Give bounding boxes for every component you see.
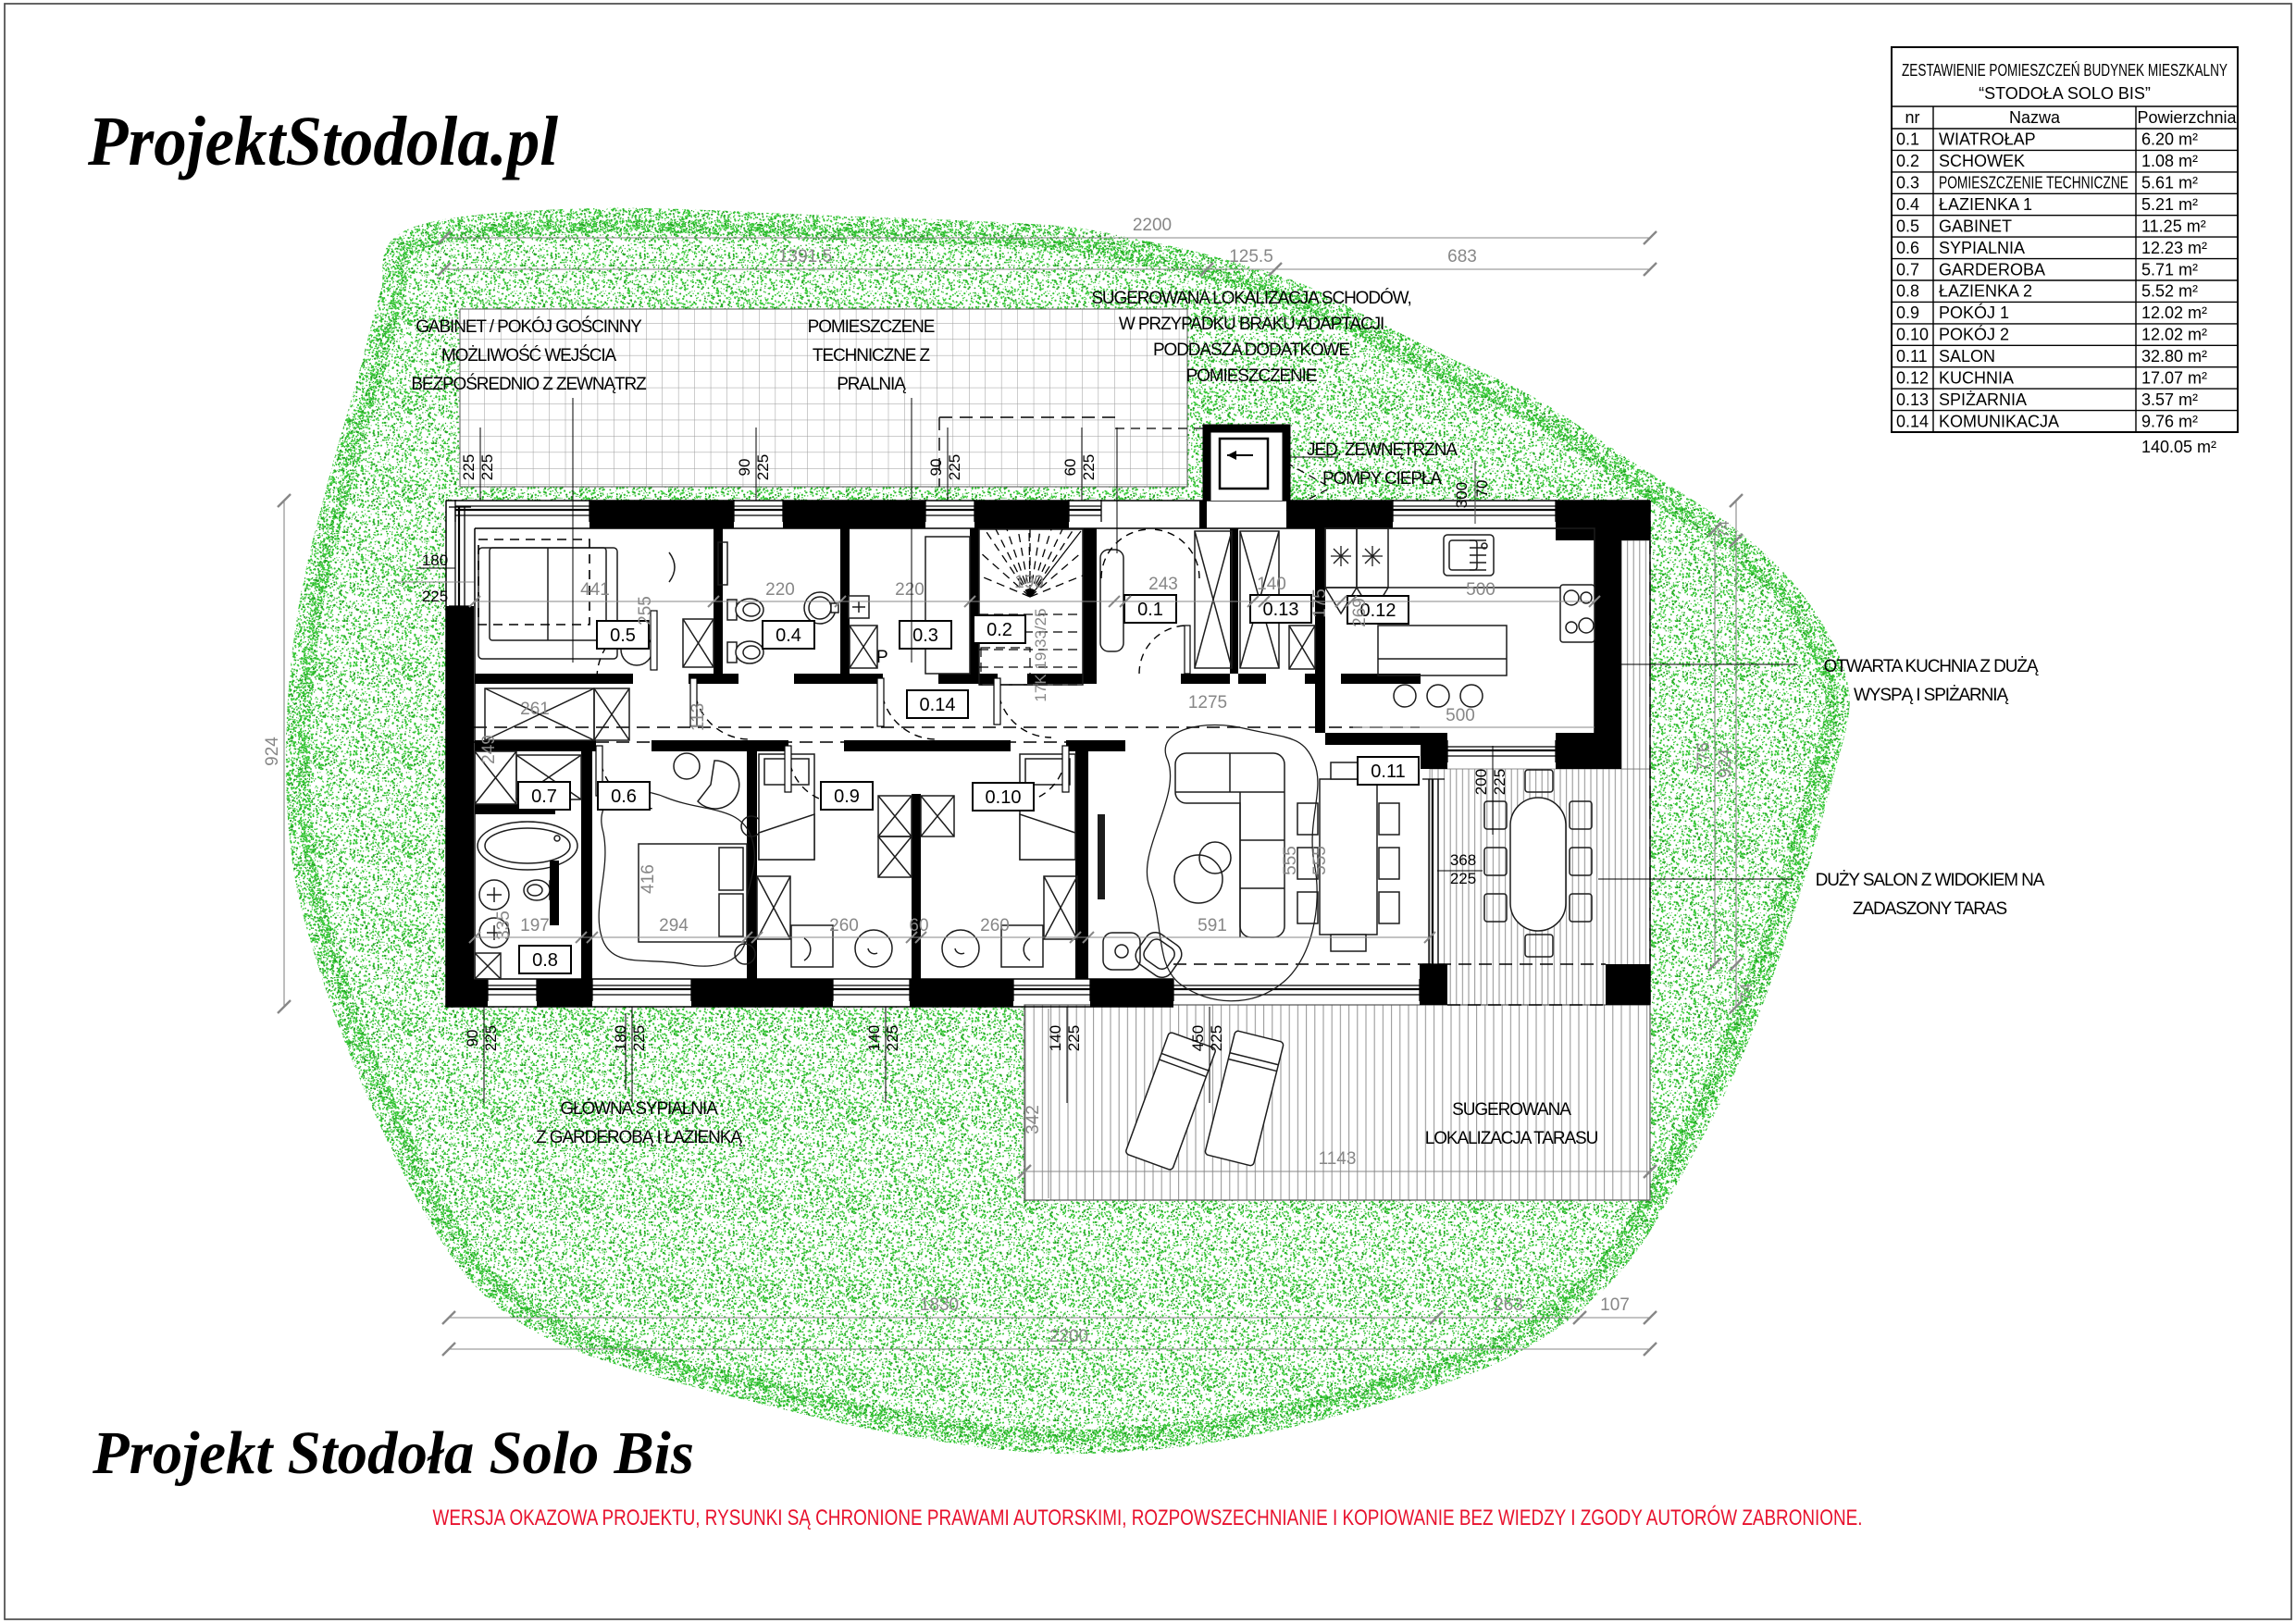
svg-text:225: 225 bbox=[754, 454, 772, 480]
svg-text:90: 90 bbox=[464, 1030, 481, 1047]
svg-text:225: 225 bbox=[1080, 454, 1098, 480]
svg-text:0.12: 0.12 bbox=[1896, 368, 1929, 387]
svg-text:0.8: 0.8 bbox=[1896, 282, 1919, 301]
svg-text:90: 90 bbox=[736, 459, 753, 477]
svg-text:5.61 m²: 5.61 m² bbox=[2141, 174, 2198, 192]
svg-text:Projekt Stodoła Solo Bis: Projekt Stodoła Solo Bis bbox=[92, 1419, 694, 1487]
svg-text:225: 225 bbox=[482, 1025, 500, 1051]
svg-text:17.07 m²: 17.07 m² bbox=[2141, 368, 2207, 387]
svg-text:200: 200 bbox=[1472, 769, 1490, 795]
svg-text:335: 335 bbox=[494, 911, 514, 940]
svg-text:0.8: 0.8 bbox=[532, 950, 558, 971]
svg-text:WERSJA OKAZOWA PROJEKTU, RYSUN: WERSJA OKAZOWA PROJEKTU, RYSUNKI SĄ CHRO… bbox=[433, 1505, 1863, 1530]
svg-text:294: 294 bbox=[659, 916, 689, 935]
svg-text:12.02 m²: 12.02 m² bbox=[2141, 326, 2207, 344]
svg-text:0.7: 0.7 bbox=[531, 787, 557, 807]
svg-text:LOKALIZACJA TARASU: LOKALIZACJA TARASU bbox=[1425, 1129, 1598, 1148]
svg-text:9.76 m²: 9.76 m² bbox=[2141, 412, 2198, 430]
svg-text:0.3: 0.3 bbox=[912, 626, 938, 646]
svg-text:555: 555 bbox=[1310, 846, 1330, 875]
svg-text:175: 175 bbox=[1310, 588, 1330, 618]
svg-text:0.4: 0.4 bbox=[776, 626, 801, 646]
svg-text:2200: 2200 bbox=[1133, 216, 1172, 235]
svg-text:0.9: 0.9 bbox=[834, 787, 860, 807]
svg-text:0.13: 0.13 bbox=[1263, 600, 1299, 620]
svg-text:0.7: 0.7 bbox=[1896, 260, 1919, 279]
svg-text:MOŻLIWOŚĆ WEJŚCIA: MOŻLIWOŚĆ WEJŚCIA bbox=[441, 345, 617, 365]
svg-text:0.5: 0.5 bbox=[1896, 217, 1919, 235]
svg-text:TECHNICZNE Z: TECHNICZNE Z bbox=[813, 346, 931, 365]
svg-text:261: 261 bbox=[520, 700, 550, 719]
svg-text:197: 197 bbox=[520, 916, 550, 935]
svg-text:225: 225 bbox=[422, 588, 448, 605]
svg-text:0.6: 0.6 bbox=[1896, 239, 1919, 257]
svg-text:11.25 m²: 11.25 m² bbox=[2141, 217, 2206, 235]
svg-text:190: 190 bbox=[1014, 573, 1044, 592]
svg-text:90: 90 bbox=[927, 459, 945, 477]
svg-text:DUŻY SALON Z WIDOKIEM NA: DUŻY SALON Z WIDOKIEM NA bbox=[1816, 871, 2045, 890]
svg-text:POKÓJ 1: POKÓJ 1 bbox=[1939, 303, 2009, 322]
svg-text:12.23 m²: 12.23 m² bbox=[2141, 239, 2207, 257]
svg-text:GARDEROBA: GARDEROBA bbox=[1939, 260, 2045, 279]
svg-text:225: 225 bbox=[630, 1025, 648, 1051]
svg-text:GABINET / POKÓJ GOŚCINNY: GABINET / POKÓJ GOŚCINNY bbox=[416, 316, 642, 337]
svg-text:ŁAZIENKA 2: ŁAZIENKA 2 bbox=[1939, 282, 2032, 301]
svg-text:P: P bbox=[876, 648, 887, 667]
svg-text:220: 220 bbox=[765, 580, 795, 600]
svg-text:243: 243 bbox=[1148, 575, 1178, 594]
svg-text:0.10: 0.10 bbox=[986, 787, 1022, 808]
svg-text:0.11: 0.11 bbox=[1896, 347, 1928, 365]
svg-text:Powierzchnia: Powierzchnia bbox=[2137, 108, 2237, 127]
svg-text:368: 368 bbox=[1450, 851, 1476, 869]
svg-text:255: 255 bbox=[636, 596, 655, 626]
svg-text:249: 249 bbox=[479, 735, 499, 764]
svg-text:260: 260 bbox=[980, 916, 1010, 935]
svg-text:nr: nr bbox=[1905, 108, 1919, 127]
svg-text:KOMUNIKACJA: KOMUNIKACJA bbox=[1939, 412, 2059, 430]
svg-text:70: 70 bbox=[1473, 480, 1491, 498]
svg-text:SALON: SALON bbox=[1939, 347, 1995, 365]
svg-text:GŁÓWNA SYPIALNIA: GŁÓWNA SYPIALNIA bbox=[560, 1098, 718, 1119]
svg-text:BEZPOŚREDNIO Z ZEWNĄTRZ: BEZPOŚREDNIO Z ZEWNĄTRZ bbox=[411, 374, 647, 394]
svg-text:0.6: 0.6 bbox=[611, 787, 637, 807]
svg-text:0.11: 0.11 bbox=[1371, 762, 1405, 782]
svg-text:Z GARDEROBĄ I ŁAZIENKĄ: Z GARDEROBĄ I ŁAZIENKĄ bbox=[536, 1128, 742, 1147]
svg-text:342: 342 bbox=[1024, 1105, 1043, 1134]
svg-text:1391.5: 1391.5 bbox=[778, 247, 832, 266]
svg-text:5.21 m²: 5.21 m² bbox=[2141, 195, 2198, 214]
svg-text:POKÓJ 2: POKÓJ 2 bbox=[1939, 325, 2009, 344]
svg-text:225: 225 bbox=[884, 1025, 901, 1051]
svg-text:ProjektStodola.pl: ProjektStodola.pl bbox=[87, 103, 558, 180]
svg-text:74: 74 bbox=[1737, 984, 1755, 1001]
svg-text:0.5: 0.5 bbox=[610, 626, 636, 646]
svg-text:60: 60 bbox=[909, 916, 928, 935]
svg-text:POMIESZCZENE: POMIESZCZENE bbox=[808, 317, 935, 337]
svg-text:924: 924 bbox=[1716, 749, 1735, 778]
svg-text:SCHOWEK: SCHOWEK bbox=[1939, 152, 2025, 170]
svg-text:17K 19,33/25: 17K 19,33/25 bbox=[1032, 608, 1049, 701]
svg-text:SYPIALNIA: SYPIALNIA bbox=[1939, 239, 2025, 257]
svg-text:Nazwa: Nazwa bbox=[2009, 108, 2061, 127]
svg-text:SUGEROWANA LOKALIZACJA SCHODÓW: SUGEROWANA LOKALIZACJA SCHODÓW, bbox=[1091, 288, 1410, 308]
svg-text:“STODOŁA SOLO BIS”: “STODOŁA SOLO BIS” bbox=[1979, 84, 2151, 103]
svg-text:POMPY CIEPŁA: POMPY CIEPŁA bbox=[1322, 469, 1442, 489]
svg-text:591: 591 bbox=[1198, 916, 1227, 935]
svg-text:263: 263 bbox=[1494, 1295, 1523, 1315]
svg-text:GABINET: GABINET bbox=[1939, 217, 2012, 235]
svg-text:WIATROŁAP: WIATROŁAP bbox=[1939, 130, 2036, 149]
svg-text:113: 113 bbox=[689, 703, 708, 731]
svg-text:ZESTAWIENIE POMIESZCZEŃ BUDYNE: ZESTAWIENIE POMIESZCZEŃ BUDYNEK MIESZKAL… bbox=[1902, 61, 2228, 80]
svg-text:0.9: 0.9 bbox=[1896, 304, 1919, 322]
svg-text:1830: 1830 bbox=[920, 1295, 959, 1315]
svg-text:225: 225 bbox=[1491, 769, 1508, 795]
svg-text:269: 269 bbox=[1350, 598, 1370, 627]
svg-text:225: 225 bbox=[1450, 870, 1476, 887]
svg-text:500: 500 bbox=[1446, 706, 1475, 725]
svg-text:0.10: 0.10 bbox=[1896, 326, 1929, 344]
svg-text:74: 74 bbox=[1715, 521, 1732, 539]
svg-text:683: 683 bbox=[1447, 247, 1477, 266]
svg-text:416: 416 bbox=[639, 864, 658, 894]
svg-text:3.57 m²: 3.57 m² bbox=[2141, 390, 2198, 409]
svg-text:W PRZYPADKU BRAKU ADAPTACJI: W PRZYPADKU BRAKU ADAPTACJI bbox=[1119, 315, 1384, 334]
svg-text:SUGEROWANA: SUGEROWANA bbox=[1452, 1100, 1571, 1120]
svg-text:441: 441 bbox=[580, 580, 610, 600]
svg-text:POMIESZCZENIE TECHNICZNE: POMIESZCZENIE TECHNICZNE bbox=[1939, 174, 2128, 192]
svg-text:180: 180 bbox=[612, 1025, 629, 1051]
svg-text:OTWARTA KUCHNIA Z DUŻĄ: OTWARTA KUCHNIA Z DUŻĄ bbox=[1824, 657, 2039, 676]
svg-text:1275: 1275 bbox=[1188, 693, 1227, 712]
svg-text:SPIŻARNIA: SPIŻARNIA bbox=[1939, 390, 2027, 409]
svg-text:KUCHNIA: KUCHNIA bbox=[1939, 368, 2014, 387]
svg-text:500: 500 bbox=[1466, 580, 1496, 600]
svg-text:125.5: 125.5 bbox=[1229, 247, 1273, 266]
svg-text:POMIESZCZENIE: POMIESZCZENIE bbox=[1186, 366, 1317, 386]
svg-text:0.1: 0.1 bbox=[1137, 600, 1163, 620]
svg-text:225: 225 bbox=[1065, 1025, 1083, 1051]
svg-text:1143: 1143 bbox=[1319, 1149, 1357, 1169]
svg-text:0.14: 0.14 bbox=[1896, 412, 1929, 430]
svg-text:225: 225 bbox=[460, 454, 478, 480]
svg-text:450: 450 bbox=[1189, 1025, 1207, 1051]
svg-text:140: 140 bbox=[865, 1025, 883, 1051]
svg-text:225: 225 bbox=[478, 454, 496, 480]
svg-text:140: 140 bbox=[1257, 575, 1286, 594]
svg-text:0.2: 0.2 bbox=[987, 620, 1012, 640]
svg-text:6.20 m²: 6.20 m² bbox=[2141, 130, 2198, 149]
svg-text:0.1: 0.1 bbox=[1896, 130, 1919, 149]
svg-text:12.02 m²: 12.02 m² bbox=[2141, 304, 2207, 322]
svg-text:260: 260 bbox=[829, 916, 859, 935]
svg-text:0.2: 0.2 bbox=[1896, 152, 1919, 170]
svg-text:300: 300 bbox=[1453, 482, 1471, 508]
svg-text:555: 555 bbox=[1281, 846, 1300, 875]
svg-text:225: 225 bbox=[1208, 1025, 1225, 1051]
svg-text:107: 107 bbox=[1600, 1295, 1630, 1315]
svg-text:ZADASZONY TARAS: ZADASZONY TARAS bbox=[1853, 899, 2007, 919]
svg-text:PODDASZA DODATKOWE: PODDASZA DODATKOWE bbox=[1153, 341, 1350, 360]
svg-text:180: 180 bbox=[422, 551, 448, 569]
svg-text:1.08 m²: 1.08 m² bbox=[2141, 152, 2198, 170]
svg-text:60: 60 bbox=[1061, 459, 1079, 477]
svg-text:5.71 m²: 5.71 m² bbox=[2141, 260, 2198, 279]
svg-text:ŁAZIENKA 1: ŁAZIENKA 1 bbox=[1939, 195, 2032, 214]
svg-text:5.52 m²: 5.52 m² bbox=[2141, 282, 2198, 301]
svg-text:140.05 m²: 140.05 m² bbox=[2141, 438, 2216, 456]
svg-text:WYSPĄ I SPIŻARNIĄ: WYSPĄ I SPIŻARNIĄ bbox=[1854, 686, 2008, 705]
svg-text:140: 140 bbox=[1047, 1025, 1064, 1051]
svg-text:220: 220 bbox=[895, 580, 925, 600]
svg-text:0.3: 0.3 bbox=[1896, 174, 1919, 192]
svg-text:2200: 2200 bbox=[1049, 1327, 1088, 1346]
svg-text:32.80 m²: 32.80 m² bbox=[2141, 347, 2207, 365]
svg-text:776: 776 bbox=[1694, 742, 1714, 772]
svg-text:0.4: 0.4 bbox=[1896, 195, 1919, 214]
svg-text:225: 225 bbox=[946, 454, 963, 480]
svg-text:924: 924 bbox=[263, 737, 282, 766]
svg-text:0.13: 0.13 bbox=[1896, 390, 1929, 409]
svg-text:0.14: 0.14 bbox=[920, 695, 956, 715]
svg-text:PRALNIĄ: PRALNIĄ bbox=[837, 375, 906, 394]
